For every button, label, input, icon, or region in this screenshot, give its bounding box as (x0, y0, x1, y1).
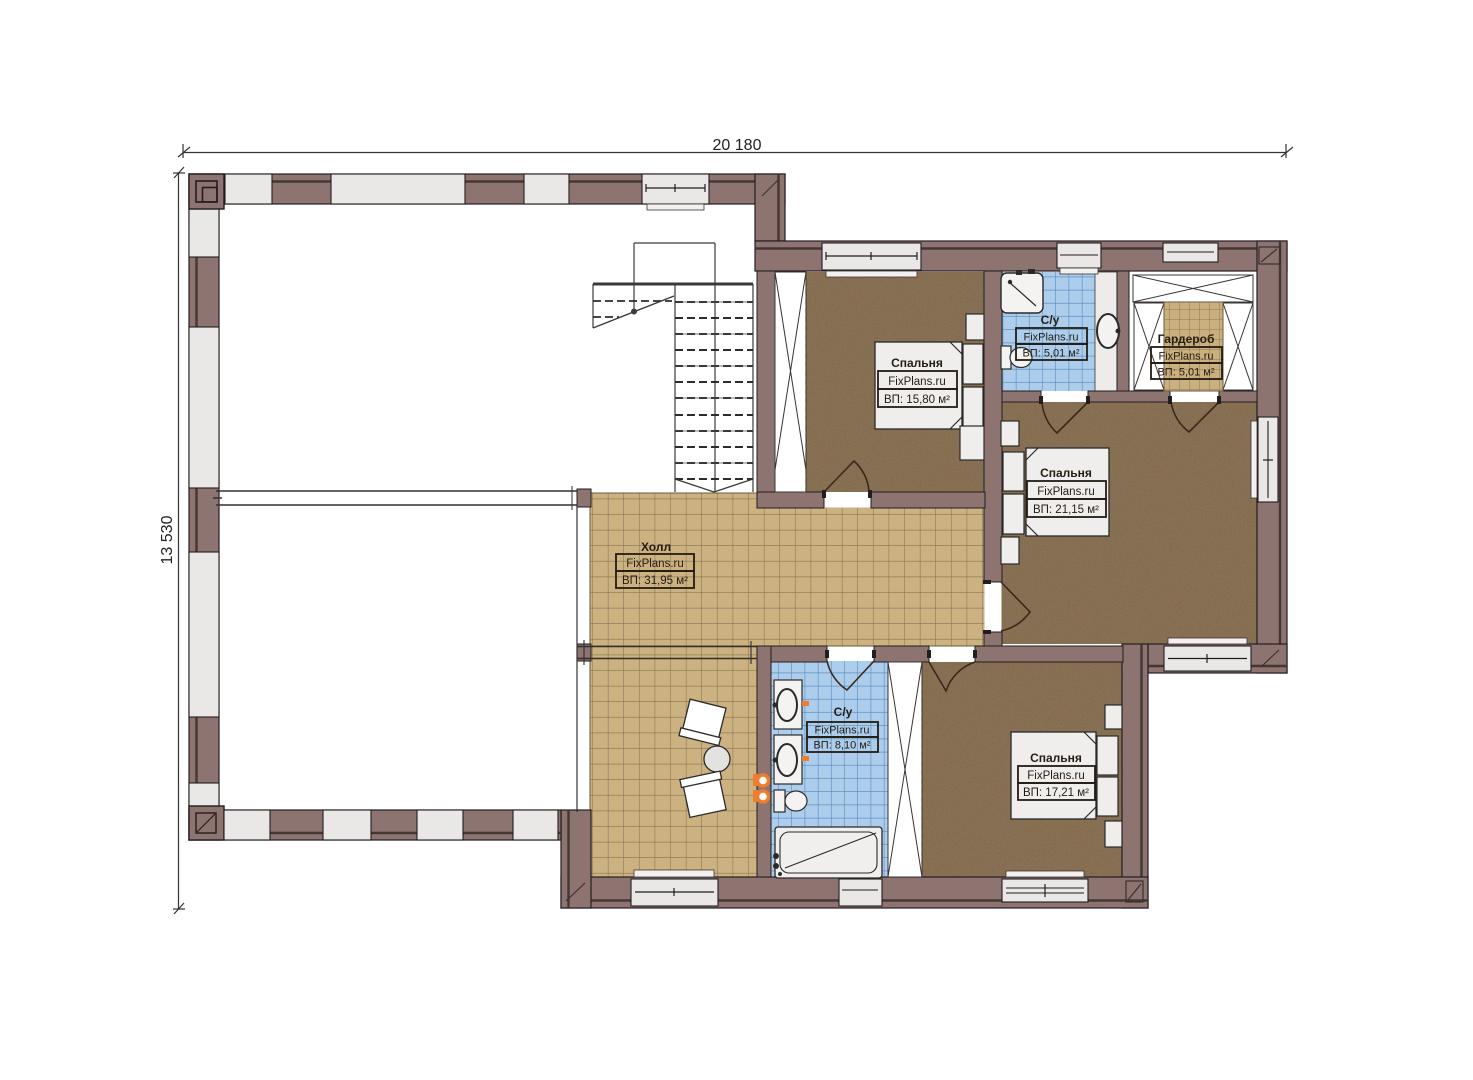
svg-text:FixPlans.ru: FixPlans.ru (1158, 351, 1213, 363)
svg-text:ВП: 31,95 м²: ВП: 31,95 м² (622, 575, 688, 587)
svg-text:Спальня: Спальня (1030, 751, 1082, 765)
svg-text:ВП: 21,15 м²: ВП: 21,15 м² (1033, 504, 1099, 516)
svg-text:С/у: С/у (1041, 313, 1060, 327)
svg-text:ВП: 5,01 м²: ВП: 5,01 м² (1022, 348, 1079, 360)
svg-text:ВП: 5,01 м²: ВП: 5,01 м² (1157, 367, 1214, 379)
svg-text:ВП: 8,10 м²: ВП: 8,10 м² (813, 740, 870, 752)
svg-text:20 180: 20 180 (713, 137, 762, 154)
svg-text:FixPlans.ru: FixPlans.ru (626, 558, 684, 570)
svg-text:Спальня: Спальня (891, 356, 943, 370)
svg-text:13 530: 13 530 (159, 515, 176, 564)
svg-text:FixPlans.ru: FixPlans.ru (1023, 332, 1078, 344)
svg-text:ВП: 15,80 м²: ВП: 15,80 м² (884, 394, 950, 406)
svg-text:FixPlans.ru: FixPlans.ru (888, 376, 946, 388)
svg-text:ВП: 17,21 м²: ВП: 17,21 м² (1023, 787, 1089, 799)
svg-text:Гардероб: Гардероб (1158, 332, 1215, 346)
svg-text:Спальня: Спальня (1040, 466, 1092, 480)
svg-text:FixPlans.ru: FixPlans.ru (1027, 770, 1085, 782)
svg-text:Холл: Холл (641, 540, 671, 554)
svg-text:FixPlans.ru: FixPlans.ru (1037, 486, 1095, 498)
svg-text:FixPlans.ru: FixPlans.ru (814, 725, 869, 737)
svg-text:С/у: С/у (834, 705, 853, 719)
